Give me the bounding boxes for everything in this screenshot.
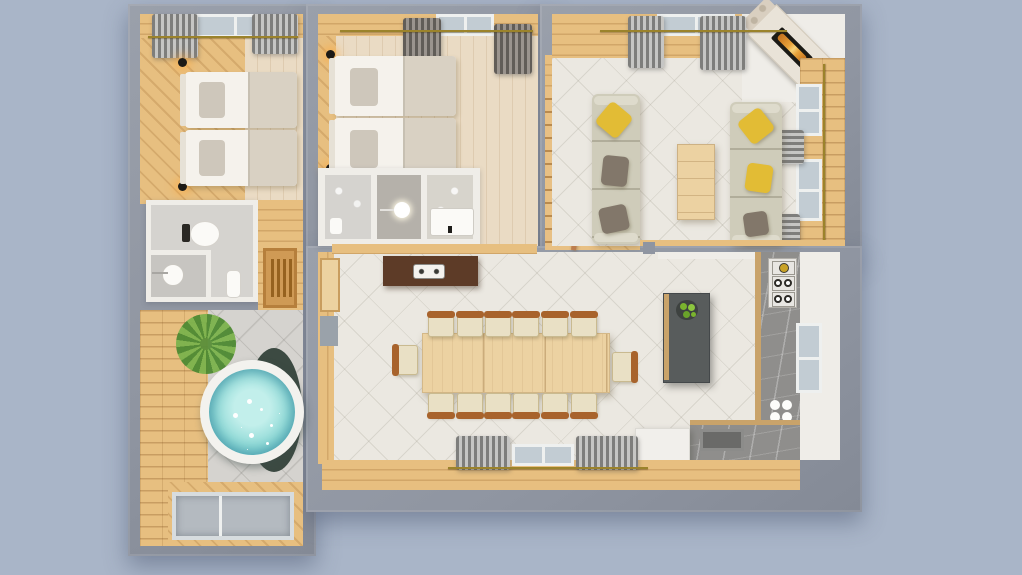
bed-blanket bbox=[248, 72, 297, 128]
chair-back bbox=[427, 311, 455, 318]
round-sink bbox=[162, 264, 184, 286]
bidet bbox=[226, 270, 241, 298]
double-round-sink bbox=[770, 400, 780, 410]
wall-mirror-panel bbox=[320, 316, 338, 346]
bathroom-1 bbox=[146, 200, 258, 302]
burner bbox=[774, 279, 782, 287]
throw-pillow-brown bbox=[598, 203, 631, 234]
dining-curtain-right bbox=[576, 436, 638, 470]
burner-brass bbox=[779, 263, 789, 273]
dining-chair bbox=[571, 313, 597, 337]
shower-drain bbox=[448, 226, 452, 233]
dining-chair bbox=[513, 313, 539, 337]
coffee-table bbox=[677, 144, 715, 220]
dining-chair-end bbox=[394, 345, 418, 375]
gas-cooktop bbox=[768, 258, 797, 308]
dining-curtain-left bbox=[456, 436, 510, 470]
chair-back bbox=[456, 311, 484, 318]
living-room bbox=[552, 14, 845, 246]
partition-wall-h bbox=[151, 250, 209, 255]
window-pane-divider bbox=[799, 189, 819, 192]
shower-tray bbox=[430, 208, 474, 236]
dining-chair bbox=[571, 393, 597, 417]
chair-back bbox=[570, 311, 598, 318]
bed-pillow bbox=[350, 68, 378, 106]
bath-accessory bbox=[330, 218, 342, 234]
living-top-curtain-rod bbox=[600, 30, 787, 32]
fruit-bowl bbox=[676, 300, 698, 320]
bed-pillow bbox=[199, 140, 225, 176]
partition-wall-v bbox=[206, 250, 211, 297]
bed-headboard bbox=[180, 132, 186, 184]
dining-chair bbox=[428, 393, 454, 417]
slatted-bench bbox=[263, 248, 297, 308]
kitchen-top-wall bbox=[658, 252, 756, 259]
chair-back bbox=[541, 412, 569, 419]
chair-back bbox=[392, 344, 399, 376]
bedroom-1-bed-1 bbox=[185, 72, 297, 128]
living-right-window-2 bbox=[796, 159, 822, 221]
bed-headboard bbox=[329, 58, 335, 114]
bedroom-1 bbox=[140, 14, 303, 204]
bedroom-2-bed-1 bbox=[334, 56, 456, 116]
dining-kitchen bbox=[322, 252, 800, 490]
burner bbox=[774, 295, 782, 303]
chair-back bbox=[570, 412, 598, 419]
bathroom-2 bbox=[318, 168, 480, 246]
throw-pillow-yellow bbox=[594, 100, 633, 139]
chair-back bbox=[631, 351, 638, 383]
window-pane-divider bbox=[234, 17, 237, 35]
dining-chair bbox=[428, 313, 454, 337]
sofa-right bbox=[730, 102, 782, 246]
spa-room bbox=[140, 310, 303, 546]
bedroom-1-curtain-rod bbox=[148, 36, 298, 38]
chair-back bbox=[484, 412, 512, 419]
dining-chair bbox=[542, 393, 568, 417]
bed-pillow bbox=[199, 82, 225, 118]
living-right-window-1 bbox=[796, 84, 822, 136]
chair-back bbox=[541, 311, 569, 318]
kitchen-right-window bbox=[796, 323, 822, 393]
dining-chair bbox=[457, 393, 483, 417]
glass-floor-divider bbox=[219, 496, 222, 536]
bedroom-1-bed-2 bbox=[185, 130, 297, 186]
throw-pillow-yellow bbox=[744, 162, 774, 193]
bed-pillow bbox=[350, 130, 378, 168]
toilet-bowl bbox=[190, 221, 220, 247]
radio-decor bbox=[413, 264, 445, 279]
counter-sink bbox=[700, 429, 744, 451]
bench-slats bbox=[268, 259, 292, 297]
entry-door bbox=[320, 258, 340, 312]
island-wood-edge bbox=[664, 294, 669, 380]
plant-center bbox=[199, 337, 213, 351]
chair-back bbox=[484, 311, 512, 318]
burner-pair bbox=[772, 292, 795, 307]
wall-stub bbox=[643, 242, 655, 254]
window-pane-divider bbox=[799, 357, 819, 360]
burner-pair bbox=[772, 276, 795, 291]
burner bbox=[784, 279, 792, 287]
chair-back bbox=[427, 412, 455, 419]
bedroom-2-window bbox=[436, 14, 494, 36]
wall-sconce bbox=[178, 58, 187, 67]
sink-faucet bbox=[380, 209, 394, 211]
window-pane-divider bbox=[542, 447, 545, 463]
throw-pillow-brown bbox=[601, 155, 630, 188]
dining-chair bbox=[542, 313, 568, 337]
dining-bottom-window bbox=[512, 444, 574, 466]
kitchen-island bbox=[663, 293, 710, 383]
bed-blanket bbox=[248, 130, 297, 186]
sideboard bbox=[383, 256, 478, 286]
bed-headboard bbox=[180, 74, 186, 126]
sofa-armrest bbox=[594, 233, 638, 242]
round-hot-tub bbox=[200, 360, 304, 464]
living-right-curtain-rod bbox=[823, 64, 825, 244]
dining-table bbox=[422, 333, 610, 393]
sofa-left bbox=[592, 94, 640, 244]
chair-back bbox=[512, 311, 540, 318]
living-curtain-top-right bbox=[700, 16, 746, 70]
dining-chair-end bbox=[612, 352, 636, 382]
toilet-tank bbox=[182, 224, 190, 242]
dining-curtain-rod bbox=[448, 467, 648, 469]
burner bbox=[784, 295, 792, 303]
living-bottom-wall bbox=[640, 240, 845, 246]
sink-faucet bbox=[152, 272, 168, 274]
bedroom-2-curtain-rod bbox=[340, 30, 533, 32]
hot-tub-bubbles bbox=[247, 399, 252, 404]
dining-chair bbox=[485, 393, 511, 417]
hallway bbox=[258, 200, 303, 312]
round-sink bbox=[394, 202, 410, 218]
bed-blanket bbox=[403, 56, 456, 116]
burner-single bbox=[772, 261, 795, 275]
dining-chair bbox=[513, 393, 539, 417]
window-pane-divider bbox=[799, 109, 819, 112]
floorplan-render bbox=[0, 0, 1022, 575]
dining-chair bbox=[457, 313, 483, 337]
living-curtain-top-left bbox=[628, 16, 664, 68]
throw-pillow-brown bbox=[742, 210, 769, 237]
glass-floor-panel bbox=[172, 492, 294, 540]
bedroom-1-curtain-right bbox=[252, 14, 298, 54]
chair-back bbox=[456, 412, 484, 419]
chair-back bbox=[512, 412, 540, 419]
dining-chair bbox=[485, 313, 511, 337]
green-apples bbox=[680, 303, 687, 310]
dining-top-wall bbox=[332, 244, 537, 254]
